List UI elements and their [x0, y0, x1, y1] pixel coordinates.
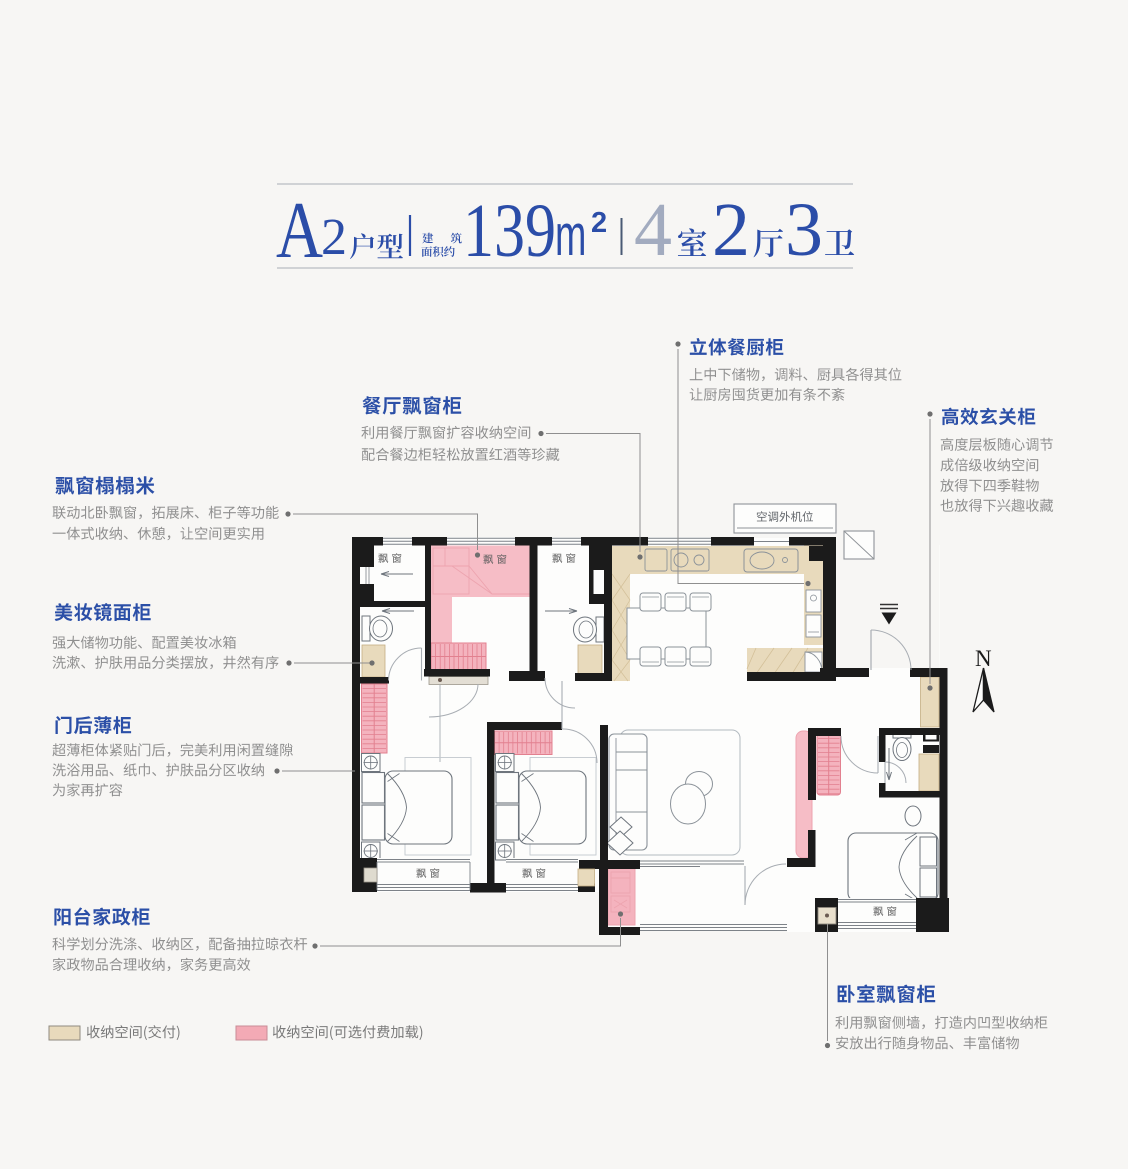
svg-text:139: 139	[463, 189, 556, 273]
svg-text:A: A	[276, 187, 323, 275]
svg-text:2: 2	[321, 209, 347, 266]
svg-text:2: 2	[591, 207, 607, 239]
svg-text:3: 3	[785, 188, 823, 272]
svg-text:m: m	[555, 204, 586, 268]
svg-text:2: 2	[712, 188, 750, 272]
svg-text:4: 4	[634, 188, 672, 272]
svg-text:N: N	[975, 646, 992, 671]
